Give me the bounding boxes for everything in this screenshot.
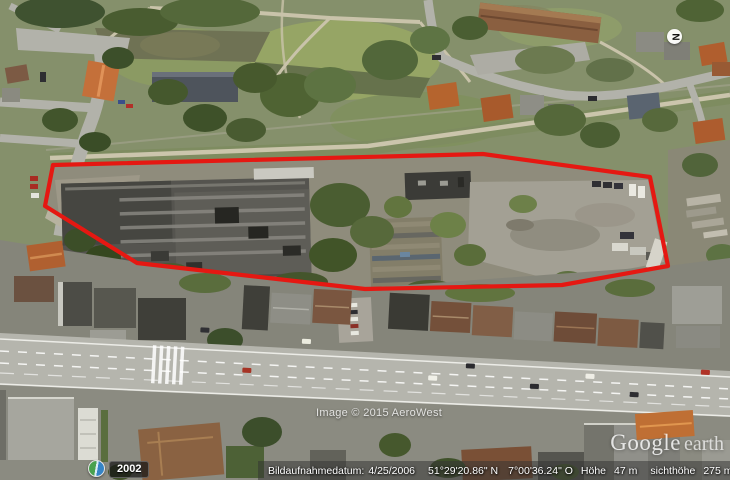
google-logo-text: Google [610,430,681,455]
earth-logo-text: earth [684,433,724,455]
elevation-label: Höhe [581,465,606,477]
historical-imagery-icon[interactable] [88,460,105,477]
timeline-year: 2002 [117,463,141,475]
status-bar: Bildaufnahmedatum: 4/25/2006 51°29'20.86… [258,461,730,480]
imagery-date-label: Bildaufnahmedatum: [268,465,364,477]
compass-north-indicator[interactable]: N [667,29,682,44]
latitude-value: 51°29'20.86" N [428,465,498,477]
imagery-copyright-watermark: Image © 2015 AeroWest [316,407,442,419]
imagery-date-value: 4/25/2006 [368,465,415,477]
elevation-value: 47 m [614,465,637,477]
longitude-value: 7°00'36.24" O [508,465,573,477]
site-building [405,171,472,200]
eye-altitude-value: 275 m [703,465,730,477]
google-earth-logo: Googleearth [610,430,724,456]
compass-north-letter: N [669,33,679,40]
google-earth-viewport[interactable]: Image © 2015 AeroWest N 2002 Googleearth… [0,0,730,480]
timeline-year-badge[interactable]: 2002 [109,461,149,478]
eye-altitude-label: sichthöhe [650,465,695,477]
